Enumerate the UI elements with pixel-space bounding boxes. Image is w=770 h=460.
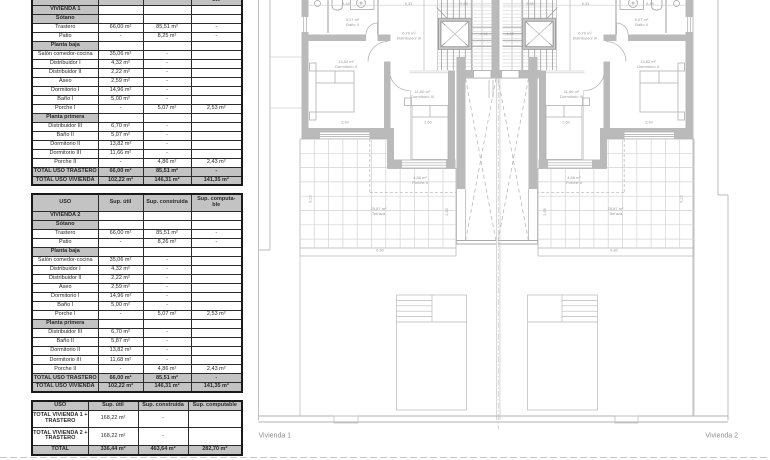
svg-text:Terraza: Terraza — [609, 211, 623, 216]
svg-text:6,80: 6,80 — [376, 249, 383, 253]
svg-text:Porche II: Porche II — [412, 180, 428, 185]
svg-text:2,60: 2,60 — [424, 121, 431, 125]
svg-text:Dormitorio II: Dormitorio II — [335, 64, 357, 69]
svg-text:5,40: 5,40 — [645, 121, 652, 125]
svg-text:Distribuidor III: Distribuidor III — [397, 36, 422, 41]
svg-text:Dormitorio II: Dormitorio II — [637, 64, 659, 69]
svg-text:Baño II: Baño II — [635, 22, 648, 27]
svg-text:4,66: 4,66 — [506, 32, 513, 36]
svg-text:2,65: 2,65 — [543, 208, 547, 215]
svg-text:8,48: 8,48 — [342, 2, 349, 6]
svg-text:6,22: 6,22 — [309, 195, 313, 202]
svg-text:Dormitorio III: Dormitorio III — [560, 94, 583, 99]
svg-text:Distribuidor III: Distribuidor III — [573, 36, 598, 41]
svg-text:Dormitorio III: Dormitorio III — [411, 94, 434, 99]
svg-text:Baño II: Baño II — [346, 22, 359, 27]
svg-text:6,80: 6,80 — [610, 249, 617, 253]
svg-text:5,40: 5,40 — [341, 121, 348, 125]
svg-text:6,33: 6,33 — [405, 2, 412, 6]
svg-text:2,88: 2,88 — [460, 2, 467, 6]
svg-text:Vivienda 2: Vivienda 2 — [705, 433, 738, 440]
svg-text:Vivienda 1: Vivienda 1 — [259, 433, 292, 440]
svg-text:Porche II: Porche II — [566, 180, 582, 185]
svg-text:2,88: 2,88 — [526, 2, 533, 6]
svg-text:6,33: 6,33 — [582, 2, 589, 6]
svg-text:6,22: 6,22 — [680, 195, 684, 202]
svg-text:2,65: 2,65 — [445, 208, 449, 215]
svg-text:Terraza: Terraza — [372, 211, 386, 216]
svg-text:8,48: 8,48 — [646, 2, 653, 6]
svg-text:2,60: 2,60 — [562, 121, 569, 125]
svg-text:4,66: 4,66 — [480, 32, 487, 36]
